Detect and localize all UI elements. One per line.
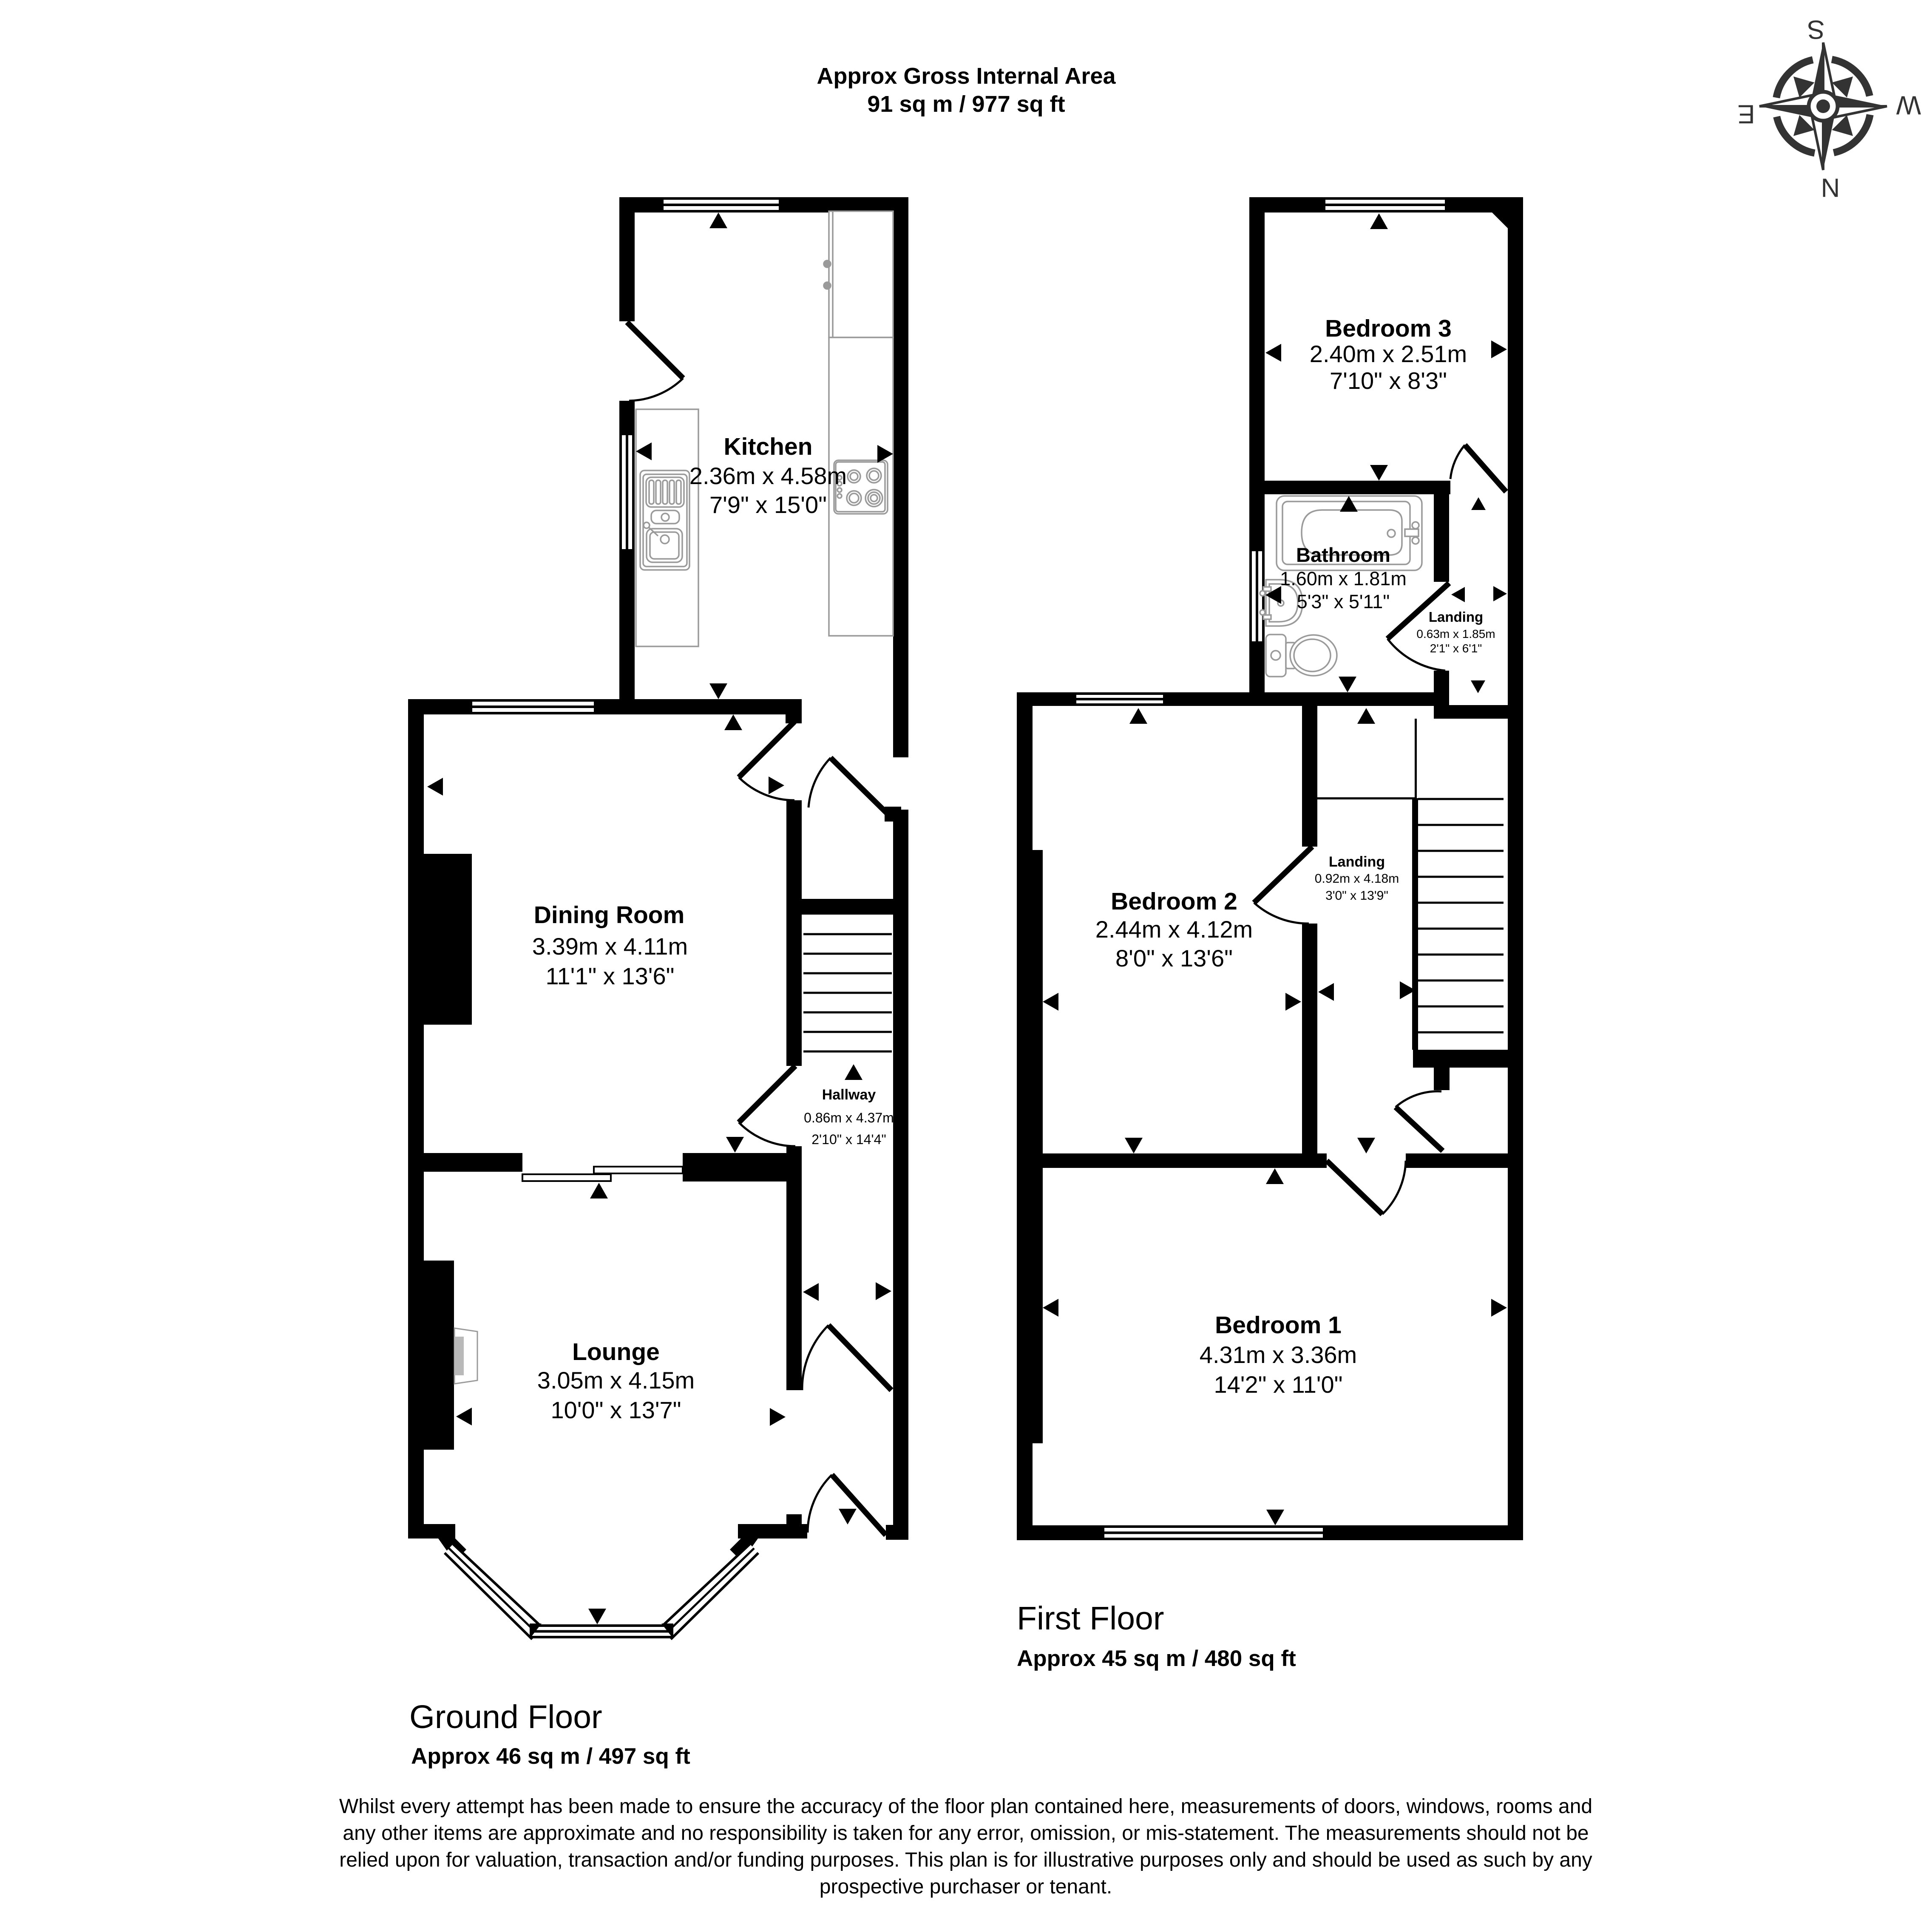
svg-text:S: S [1807, 15, 1824, 44]
svg-text:Kitchen: Kitchen [723, 433, 812, 460]
svg-text:91 sq m / 977 sq ft: 91 sq m / 977 sq ft [867, 91, 1065, 117]
svg-text:0.86m x 4.37m: 0.86m x 4.37m [804, 1110, 894, 1125]
svg-text:14'2" x 11'0": 14'2" x 11'0" [1214, 1371, 1343, 1398]
svg-text:Lounge: Lounge [572, 1338, 660, 1366]
svg-text:W: W [1896, 91, 1921, 120]
svg-text:Dining Room: Dining Room [534, 901, 685, 929]
svg-text:Approx 45 sq m / 480 sq ft: Approx 45 sq m / 480 sq ft [1017, 1646, 1296, 1671]
svg-text:11'1" x 13'6": 11'1" x 13'6" [546, 963, 675, 989]
svg-text:prospective purchaser or tenan: prospective purchaser or tenant. [820, 1876, 1112, 1898]
svg-text:First Floor: First Floor [1017, 1600, 1164, 1637]
svg-text:3.39m x 4.11m: 3.39m x 4.11m [532, 933, 688, 960]
svg-text:N: N [1821, 173, 1840, 202]
svg-text:Bedroom 3: Bedroom 3 [1325, 315, 1452, 342]
svg-text:Approx Gross Internal Area: Approx Gross Internal Area [817, 63, 1116, 89]
svg-text:5'3" x 5'11": 5'3" x 5'11" [1297, 591, 1390, 612]
svg-text:2.44m x 4.12m: 2.44m x 4.12m [1095, 916, 1253, 943]
svg-text:0.63m x 1.85m: 0.63m x 1.85m [1416, 627, 1495, 640]
svg-text:Landing: Landing [1329, 854, 1385, 870]
svg-text:Landing: Landing [1429, 609, 1483, 625]
svg-text:Hallway: Hallway [822, 1087, 876, 1103]
svg-text:Bedroom 1: Bedroom 1 [1215, 1312, 1342, 1339]
svg-text:Approx 46 sq m / 497 sq ft: Approx 46 sq m / 497 sq ft [411, 1744, 690, 1769]
svg-text:Whilst every attempt has been: Whilst every attempt has been made to en… [339, 1795, 1592, 1818]
svg-text:relied upon for valuation, tra: relied upon for valuation, transaction a… [339, 1849, 1592, 1871]
svg-text:E: E [1737, 99, 1755, 129]
svg-text:0.92m x 4.18m: 0.92m x 4.18m [1315, 872, 1399, 886]
svg-text:Bedroom 2: Bedroom 2 [1111, 888, 1237, 915]
svg-text:Ground Floor: Ground Floor [409, 1699, 602, 1735]
svg-text:7'9" x 15'0": 7'9" x 15'0" [709, 491, 827, 518]
svg-text:Bathroom: Bathroom [1296, 544, 1390, 566]
svg-text:1.60m x 1.81m: 1.60m x 1.81m [1280, 568, 1407, 589]
svg-text:any other items are approximat: any other items are approximate and no r… [343, 1822, 1589, 1844]
svg-text:7'10" x 8'3": 7'10" x 8'3" [1330, 367, 1447, 394]
svg-text:2.40m x 2.51m: 2.40m x 2.51m [1310, 340, 1467, 367]
svg-text:10'0" x 13'7": 10'0" x 13'7" [550, 1397, 681, 1423]
svg-text:2'1" x 6'1": 2'1" x 6'1" [1430, 642, 1482, 655]
svg-text:2.36m x 4.58m: 2.36m x 4.58m [689, 462, 847, 489]
svg-text:8'0" x 13'6": 8'0" x 13'6" [1115, 945, 1233, 972]
svg-text:3'0" x 13'9": 3'0" x 13'9" [1325, 889, 1388, 903]
svg-text:4.31m x 3.36m: 4.31m x 3.36m [1200, 1341, 1357, 1368]
svg-text:3.05m x 4.15m: 3.05m x 4.15m [537, 1367, 695, 1394]
svg-text:2'10" x 14'4": 2'10" x 14'4" [811, 1132, 886, 1147]
